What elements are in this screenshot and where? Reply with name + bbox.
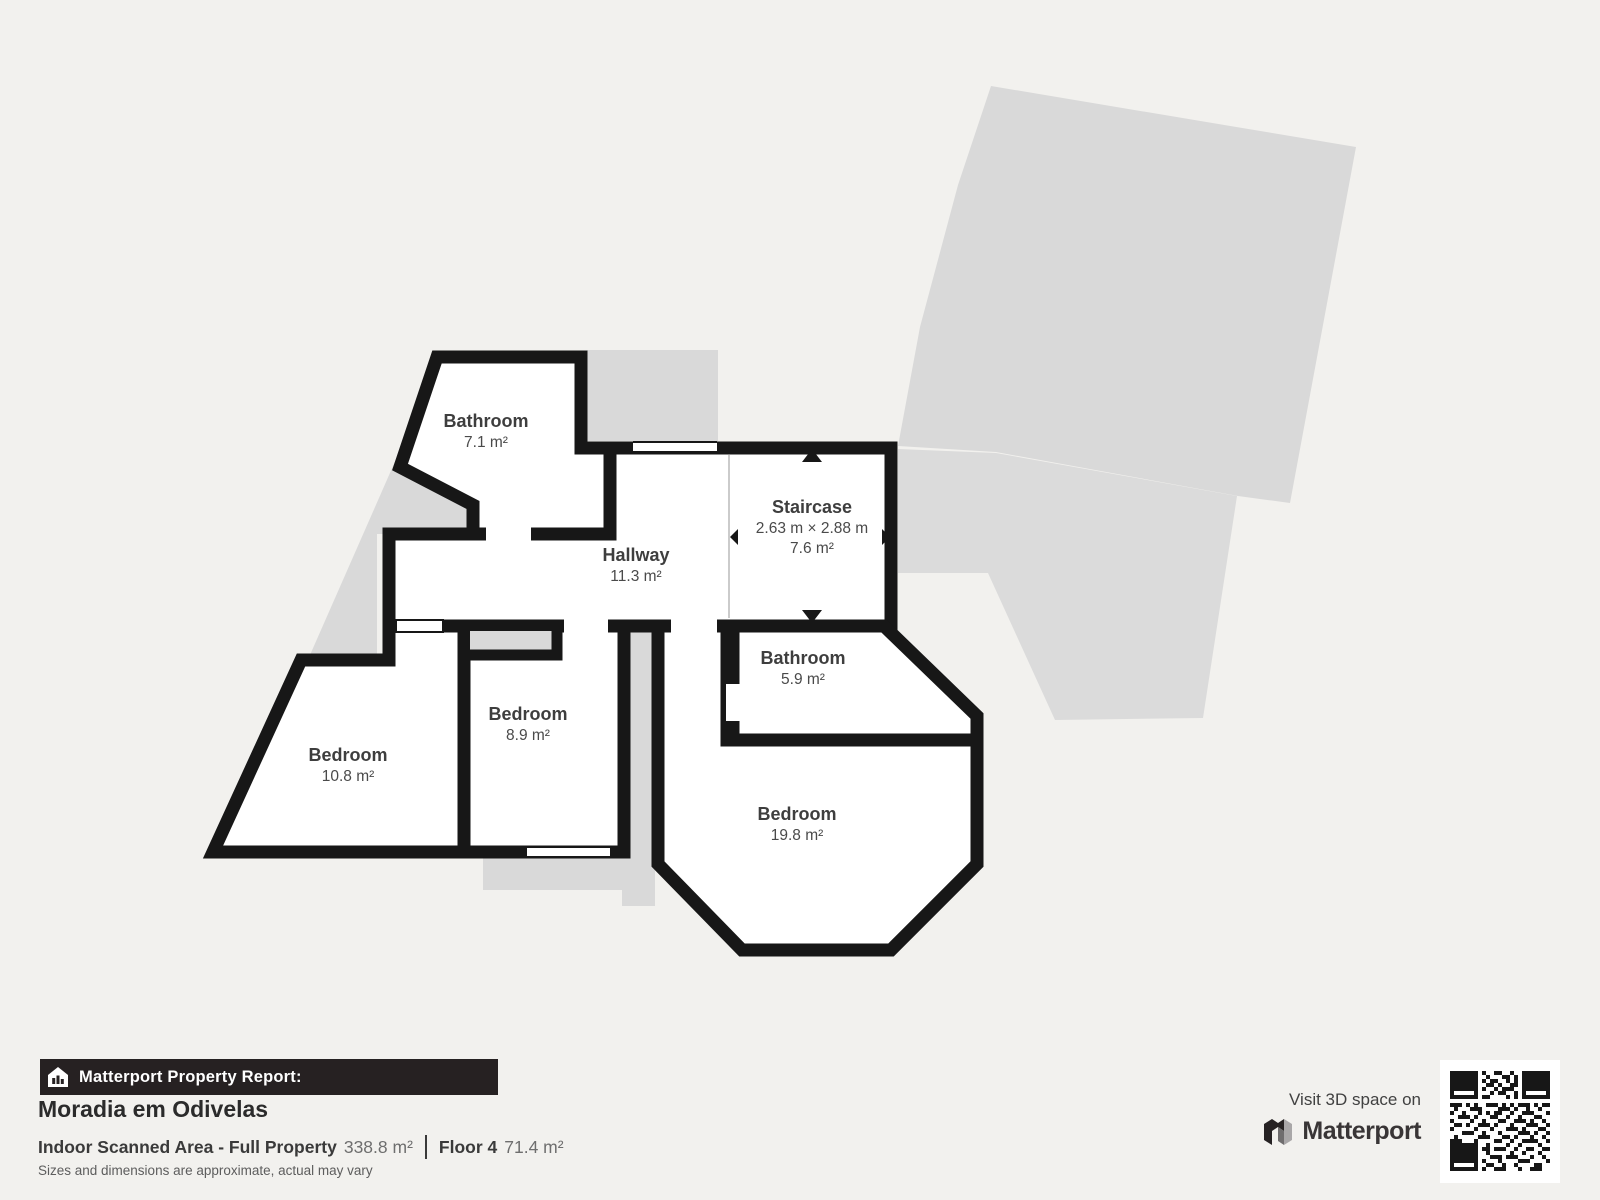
door-bedroom-10-8 (396, 620, 443, 632)
underlay-lower-polygon (898, 449, 1237, 720)
dims-staircase: 2.63 m × 2.88 m (756, 520, 868, 537)
floor-plan: Bathroom 7.1 m² Staircase 2.63 m × 2.88 … (0, 0, 1600, 1200)
disclaimer-text: Sizes and dimensions are approximate, ac… (38, 1163, 373, 1178)
label-bathroom-7-1: Bathroom (444, 411, 529, 431)
label-hallway: Hallway (602, 545, 669, 565)
label-staircase: Staircase (772, 497, 852, 517)
door-corridor (671, 619, 717, 633)
scanned-area-label: Indoor Scanned Area - Full Property (38, 1137, 337, 1158)
house-icon (48, 1067, 68, 1087)
floor-value: 71.4 m² (504, 1137, 563, 1158)
area-bedroom-10-8: 10.8 m² (322, 768, 375, 785)
label-bathroom-5-9: Bathroom (761, 648, 846, 668)
area-info-line: Indoor Scanned Area - Full Property 338.… (38, 1135, 564, 1159)
floor-label: Floor 4 (439, 1137, 497, 1158)
room-bedroom-10-8 (213, 626, 464, 852)
area-bedroom-19-8: 19.8 m² (771, 827, 824, 844)
report-bar: Matterport Property Report: (40, 1059, 498, 1095)
visit-3d-label: Visit 3D space on (1200, 1090, 1421, 1110)
label-bedroom-8-9: Bedroom (488, 704, 567, 724)
room-bathroom-5-9 (733, 626, 977, 740)
property-title: Moradia em Odivelas (38, 1096, 268, 1123)
matterport-wordmark: Matterport (1302, 1117, 1421, 1146)
report-bar-label: Matterport Property Report: (79, 1068, 302, 1087)
closet (464, 628, 557, 655)
qr-code (1450, 1071, 1550, 1171)
scanned-area-value: 338.8 m² (344, 1137, 413, 1158)
matterport-logo-icon (1263, 1118, 1293, 1146)
info-divider (425, 1135, 427, 1159)
underlay-upper-polygon (898, 86, 1356, 503)
label-bedroom-10-8: Bedroom (308, 745, 387, 765)
matterport-floorplan-page: Bathroom 7.1 m² Staircase 2.63 m × 2.88 … (0, 0, 1600, 1200)
qr-code-panel (1440, 1060, 1560, 1183)
label-bedroom-19-8: Bedroom (757, 804, 836, 824)
area-hallway: 11.3 m² (610, 568, 661, 585)
door-bathroom-5-9 (726, 684, 740, 721)
brand-block: Visit 3D space on Matterport (1200, 1090, 1421, 1146)
area-bathroom-5-9: 5.9 m² (781, 671, 825, 688)
area-bathroom-7-1: 7.1 m² (464, 434, 508, 451)
area-staircase: 7.6 m² (790, 540, 834, 557)
brand-row: Matterport (1200, 1117, 1421, 1146)
area-bedroom-8-9: 8.9 m² (506, 727, 550, 744)
underlay-below-bedroom (483, 857, 627, 890)
door-bathroom-7-1 (486, 527, 531, 541)
underlay-above-hallway (587, 350, 718, 441)
door-bedroom-8-9 (564, 619, 608, 633)
